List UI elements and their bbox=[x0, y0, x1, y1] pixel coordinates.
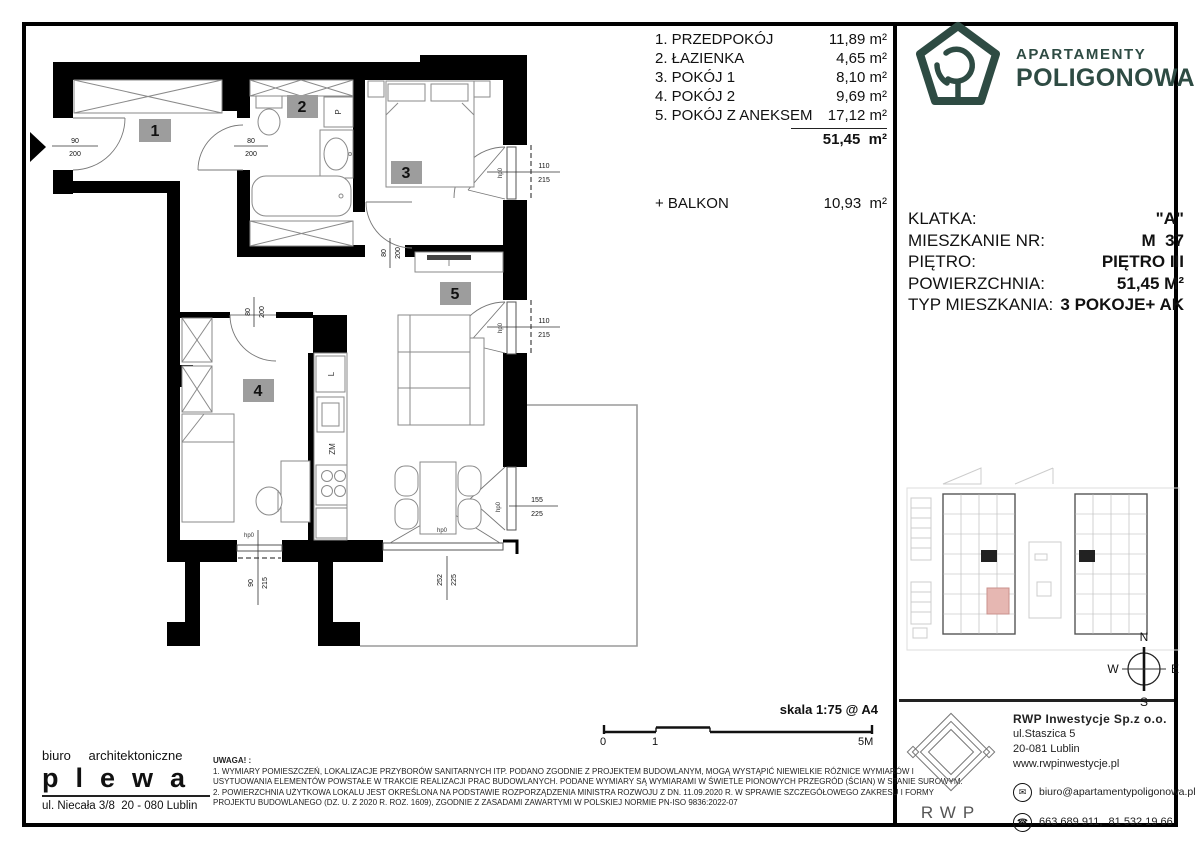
balcony-door2-height: 215 bbox=[538, 332, 550, 339]
room-list-row: 2. ŁAZIENKA4,65 m² bbox=[655, 49, 887, 68]
info-label: KLATKA: bbox=[908, 208, 977, 230]
notes-line: USYTUOWANIA ELEMENTÓW POWSTAŁE W TRAKCIE… bbox=[213, 777, 889, 788]
room-name: 2. ŁAZIENKA bbox=[655, 49, 744, 68]
scale-label: skala 1:75 @ A4 bbox=[600, 702, 878, 717]
scale-block: skala 1:75 @ A4 0 1 5M bbox=[600, 702, 878, 752]
notes-line: PROJEKTU BUDOWLANEGO (DZ. U. Z 2020 R. R… bbox=[213, 798, 889, 809]
info-value: "A" bbox=[1156, 208, 1184, 230]
room-area: 9,69 m² bbox=[836, 87, 887, 106]
balcony-door-1-glass bbox=[507, 147, 516, 199]
developer-phones: 663 689 911, 81 532 19 66 bbox=[1039, 815, 1173, 830]
developer-name: RWP Inwestycje Sp.z o.o. bbox=[1013, 712, 1179, 727]
balcony-door-2-glass bbox=[507, 302, 516, 354]
notes-line: 1. WYMIARY POMIESZCZEŃ, LOKALIZACJE PRZY… bbox=[213, 767, 889, 778]
room3-door-width: 80 bbox=[381, 249, 388, 257]
scale-bar: 0 1 5M bbox=[600, 717, 878, 747]
room3-door-height: 200 bbox=[395, 247, 402, 259]
room-name: 5. POKÓJ Z ANEKSEM bbox=[655, 106, 813, 125]
building-a bbox=[943, 494, 1015, 634]
sill-bal1: hp0 bbox=[498, 167, 504, 178]
sill-bottom: hp0 bbox=[244, 533, 255, 539]
scale-tick-0: 0 bbox=[600, 736, 606, 747]
info-value: 51,45 M² bbox=[1117, 273, 1184, 295]
room-area: 17,12 m² bbox=[828, 106, 887, 125]
info-row: POWIERZCHNIA:51,45 M² bbox=[908, 273, 1184, 295]
washer-label: P bbox=[334, 109, 343, 114]
scale-tick-5m: 5M bbox=[858, 736, 873, 747]
center-court bbox=[1029, 542, 1061, 618]
room-list-row: 3. POKÓJ 18,10 m² bbox=[655, 68, 887, 87]
compass-icon: N S W E bbox=[1103, 628, 1185, 710]
corner-wall bbox=[503, 541, 517, 554]
window-bottom-height: 215 bbox=[262, 577, 269, 589]
oven bbox=[317, 397, 344, 432]
hall-wardrobe bbox=[74, 80, 222, 113]
floor-plan: 1 2 3 4 5 P L ZM 90 bbox=[25, 45, 650, 657]
architect-address: ul. Niecała 3/8 20 - 080 Lublin bbox=[42, 800, 210, 812]
room-list-row: 5. POKÓJ Z ANEKSEM17,12 m² bbox=[655, 106, 887, 125]
fridge-label: L bbox=[327, 371, 336, 376]
phone-row: ☎ 663 689 911, 81 532 19 66 bbox=[1013, 813, 1179, 832]
developer-website: www.rwpinwestycje.pl bbox=[1013, 757, 1179, 772]
balcony-door2-width: 110 bbox=[538, 318, 549, 325]
apartment-card-page: 1 2 3 4 5 P L ZM 90 bbox=[0, 0, 1200, 849]
brand-name-top: APARTAMENTY bbox=[1016, 46, 1195, 63]
window-bottom-width: 90 bbox=[248, 579, 255, 587]
balcony-label: + BALKON bbox=[655, 194, 729, 213]
apartment-info: KLATKA:"A" MIESZKANIE NR:M 37 PIĘTRO:PIĘ… bbox=[908, 208, 1184, 316]
room-name: 3. POKÓJ 1 bbox=[655, 68, 735, 87]
info-value: PIĘTRO III bbox=[1102, 251, 1184, 273]
room-area: 4,65 m² bbox=[836, 49, 887, 68]
window-front-width: 252 bbox=[437, 574, 444, 586]
dining-table bbox=[420, 462, 456, 534]
scale-tick-1: 1 bbox=[652, 736, 658, 747]
kitchen-cabinet bbox=[316, 508, 347, 538]
vertical-divider bbox=[893, 22, 897, 823]
info-row: TYP MIESZKANIA:3 POKOJE+ AK bbox=[908, 294, 1184, 316]
info-label: MIESZKANIE NR: bbox=[908, 230, 1045, 252]
compass-s: S bbox=[1140, 695, 1148, 709]
developer-address1: ul.Staszica 5 bbox=[1013, 727, 1179, 742]
total-area: 51,45 m² bbox=[655, 130, 887, 150]
developer-contact: RWP Inwestycje Sp.z o.o. ul.Staszica 5 2… bbox=[1013, 712, 1179, 832]
info-row: MIESZKANIE NR:M 37 bbox=[908, 230, 1184, 252]
room-2-label: 2 bbox=[298, 99, 307, 116]
notes-block: UWAGA! : 1. WYMIARY POMIESZCZEŃ, LOKALIZ… bbox=[213, 756, 889, 809]
envelope-icon: ✉ bbox=[1013, 783, 1032, 802]
entry-door-height: 200 bbox=[69, 151, 81, 158]
balcony-door1-width: 110 bbox=[538, 163, 549, 170]
compass-n: N bbox=[1140, 630, 1149, 644]
room-list-row: 1. PRZEDPOKÓJ11,89 m² bbox=[655, 30, 887, 49]
sink bbox=[320, 130, 353, 178]
info-label: PIĘTRO: bbox=[908, 251, 976, 273]
info-label: POWIERZCHNIA: bbox=[908, 273, 1045, 295]
room-area: 11,89 m² bbox=[829, 30, 887, 49]
room-list: 1. PRZEDPOKÓJ11,89 m² 2. ŁAZIENKA4,65 m²… bbox=[655, 30, 887, 213]
entry-arrow-icon bbox=[30, 132, 46, 162]
developer-logo: RWP bbox=[905, 704, 997, 831]
info-row: PIĘTRO:PIĘTRO III bbox=[908, 251, 1184, 273]
building-b bbox=[1075, 494, 1147, 634]
balcony-door1-height: 215 bbox=[538, 177, 550, 184]
bath-door-width: 80 bbox=[247, 138, 255, 145]
bath-door-height: 200 bbox=[245, 151, 257, 158]
notes-heading: UWAGA! : bbox=[213, 756, 889, 767]
rwp-logo-text: RWP bbox=[921, 803, 981, 822]
developer-email: biuro@apartamentypoligonowa.pl bbox=[1039, 785, 1196, 800]
room-3-label: 3 bbox=[402, 165, 411, 182]
room-5-label: 5 bbox=[451, 286, 460, 303]
sill-front: hp0 bbox=[437, 528, 448, 534]
balcony-area: 10,93 m² bbox=[824, 194, 887, 213]
entry-door-width: 90 bbox=[71, 138, 79, 145]
parking-strips bbox=[911, 498, 931, 638]
room4-door-width: 80 bbox=[245, 308, 252, 316]
compass-w: W bbox=[1107, 662, 1119, 676]
bed-single bbox=[182, 414, 234, 522]
bed-double bbox=[368, 81, 490, 187]
info-value: M 37 bbox=[1141, 230, 1184, 252]
window-right-height: 225 bbox=[531, 511, 543, 518]
total-divider bbox=[791, 128, 887, 129]
balcony-row: + BALKON10,93 m² bbox=[655, 194, 887, 213]
info-label: TYP MIESZKANIA: bbox=[908, 294, 1053, 316]
sill-right: hp0 bbox=[496, 501, 502, 512]
developer-address2: 20-081 Lublin bbox=[1013, 742, 1179, 757]
window-right-glass bbox=[507, 467, 516, 530]
room4-door-height: 200 bbox=[259, 306, 266, 318]
dishwasher-label: ZM bbox=[328, 443, 337, 455]
sofa bbox=[398, 315, 484, 425]
email-row: ✉ biuro@apartamentypoligonowa.pl bbox=[1013, 783, 1179, 802]
bath-cabinet-bottom bbox=[250, 221, 353, 246]
stove bbox=[316, 465, 347, 505]
toilet bbox=[256, 96, 282, 135]
phone-icon: ☎ bbox=[1013, 813, 1032, 832]
tv-cabinet bbox=[415, 252, 503, 272]
desk-chair bbox=[256, 487, 282, 515]
room-area: 8,10 m² bbox=[836, 68, 887, 87]
room-4-label: 4 bbox=[254, 383, 263, 400]
architect-block: biuro architektoniczne plewa ul. Niecała… bbox=[42, 748, 210, 812]
furniture bbox=[74, 80, 503, 540]
room-1-label: 1 bbox=[151, 123, 160, 140]
window-right-width: 155 bbox=[531, 497, 543, 504]
bath-cabinet-top bbox=[250, 80, 353, 96]
notes-line: 2. POWIERZCHNIA UŻYTKOWA LOKALU JEST OKR… bbox=[213, 788, 889, 799]
sill-bal2: hp0 bbox=[498, 322, 504, 333]
rwp-diamond-icon: RWP bbox=[905, 704, 997, 826]
room-name: 1. PRZEDPOKÓJ bbox=[655, 30, 773, 49]
desk bbox=[281, 461, 310, 522]
compass-e: E bbox=[1171, 662, 1179, 676]
info-value: 3 POKOJE+ AK bbox=[1060, 294, 1184, 316]
highlighted-unit bbox=[987, 588, 1009, 614]
architect-line1: biuro architektoniczne bbox=[42, 748, 210, 763]
bathtub bbox=[252, 176, 351, 216]
brand-logo: APARTAMENTY POLIGONOWA bbox=[912, 16, 1195, 111]
info-row: KLATKA:"A" bbox=[908, 208, 1184, 230]
pentagon-tree-icon bbox=[912, 16, 1006, 111]
room-list-row: 4. POKÓJ 29,69 m² bbox=[655, 87, 887, 106]
window-bottom-glass bbox=[237, 545, 282, 551]
architect-name: plewa bbox=[42, 763, 210, 797]
brand-name-bottom: POLIGONOWA bbox=[1016, 64, 1195, 93]
window-front-glass bbox=[383, 543, 503, 550]
room-name: 4. POKÓJ 2 bbox=[655, 87, 735, 106]
window-front-height: 225 bbox=[451, 574, 458, 586]
